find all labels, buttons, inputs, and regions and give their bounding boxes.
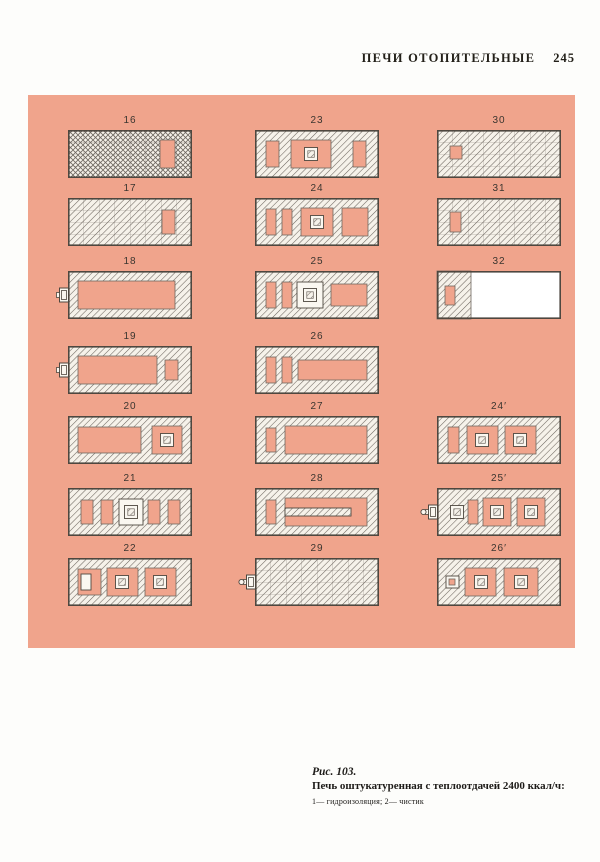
diagram-cell-24′: 24′ xyxy=(437,400,561,464)
diagram-label: 26′ xyxy=(437,542,561,558)
diagram-cell-25′: 25′ xyxy=(437,472,561,536)
diagram-cell-31: 31 xyxy=(437,182,561,246)
diagram-cell-20: 20 xyxy=(68,400,192,464)
diagram-label: 29 xyxy=(255,542,379,558)
diagram-label: 25′ xyxy=(437,472,561,488)
diagram-cell-16: 16 xyxy=(68,114,192,178)
masonry-course-drawing xyxy=(437,271,561,319)
running-title: ПЕЧИ ОТОПИТЕЛЬНЫЕ xyxy=(362,51,536,65)
masonry-course-drawing xyxy=(437,488,561,536)
diagram-cell-32: 32 xyxy=(437,255,561,319)
masonry-course-drawing xyxy=(255,130,379,178)
diagram-label: 27 xyxy=(255,400,379,416)
diagram-cell-24: 24 xyxy=(255,182,379,246)
masonry-course-drawing xyxy=(437,416,561,464)
diagram-label: 21 xyxy=(68,472,192,488)
diagram-label: 26 xyxy=(255,330,379,346)
cleanout-door-icon xyxy=(421,505,438,519)
masonry-course-drawing xyxy=(255,346,379,394)
diagram-cell-26′: 26′ xyxy=(437,542,561,606)
figure-caption: Рис. 103. Печь оштукатуренная с теплоотд… xyxy=(312,766,587,806)
diagram-label: 25 xyxy=(255,255,379,271)
masonry-course-drawing xyxy=(255,416,379,464)
diagram-cell-30: 30 xyxy=(437,114,561,178)
masonry-course-drawing xyxy=(437,198,561,246)
diagram-label: 32 xyxy=(437,255,561,271)
diagram-cell-29: 29 xyxy=(255,542,379,606)
diagram-label: 16 xyxy=(68,114,192,130)
masonry-course-drawing xyxy=(68,558,192,606)
masonry-course-drawing xyxy=(68,130,192,178)
diagram-label: 24 xyxy=(255,182,379,198)
page-header: ПЕЧИ ОТОПИТЕЛЬНЫЕ245 xyxy=(362,51,575,66)
diagram-label: 24′ xyxy=(437,400,561,416)
masonry-course-drawing xyxy=(68,198,192,246)
diagram-cell-22: 22 xyxy=(68,542,192,606)
masonry-course-drawing xyxy=(68,271,192,319)
masonry-course-drawing xyxy=(255,488,379,536)
masonry-course-drawing xyxy=(437,558,561,606)
diagram-cell-21: 21 xyxy=(68,472,192,536)
figure-panel: 161718192021222324252627282930313224′25′… xyxy=(28,95,575,648)
masonry-course-drawing xyxy=(68,488,192,536)
diagram-label: 17 xyxy=(68,182,192,198)
diagram-label: 22 xyxy=(68,542,192,558)
diagram-label: 31 xyxy=(437,182,561,198)
caption-figure-number: Рис. 103. xyxy=(312,766,587,778)
diagram-cell-18: 18 xyxy=(68,255,192,319)
diagram-label: 23 xyxy=(255,114,379,130)
masonry-course-drawing xyxy=(68,346,192,394)
caption-legend: 1— гидроизоляция; 2— чистик xyxy=(312,797,587,806)
masonry-course-drawing xyxy=(255,558,379,606)
diagram-cell-19: 19 xyxy=(68,330,192,394)
diagram-label: 18 xyxy=(68,255,192,271)
caption-title: Печь оштукатуренная с теплоотдачей 2400 … xyxy=(312,780,587,794)
cleanout-door-icon xyxy=(239,575,256,589)
masonry-course-drawing xyxy=(437,130,561,178)
diagram-label: 30 xyxy=(437,114,561,130)
masonry-course-drawing xyxy=(255,271,379,319)
masonry-course-drawing xyxy=(68,416,192,464)
diagram-cell-27: 27 xyxy=(255,400,379,464)
diagram-cell-23: 23 xyxy=(255,114,379,178)
diagram-cell-28: 28 xyxy=(255,472,379,536)
diagram-cell-26: 26 xyxy=(255,330,379,394)
diagram-cell-25: 25 xyxy=(255,255,379,319)
diagram-label: 19 xyxy=(68,330,192,346)
diagram-label: 28 xyxy=(255,472,379,488)
cleanout-door-icon xyxy=(57,363,70,377)
diagram-label: 20 xyxy=(68,400,192,416)
cleanout-door-icon xyxy=(57,288,70,302)
masonry-course-drawing xyxy=(255,198,379,246)
page-number: 245 xyxy=(553,51,575,65)
diagram-cell-17: 17 xyxy=(68,182,192,246)
